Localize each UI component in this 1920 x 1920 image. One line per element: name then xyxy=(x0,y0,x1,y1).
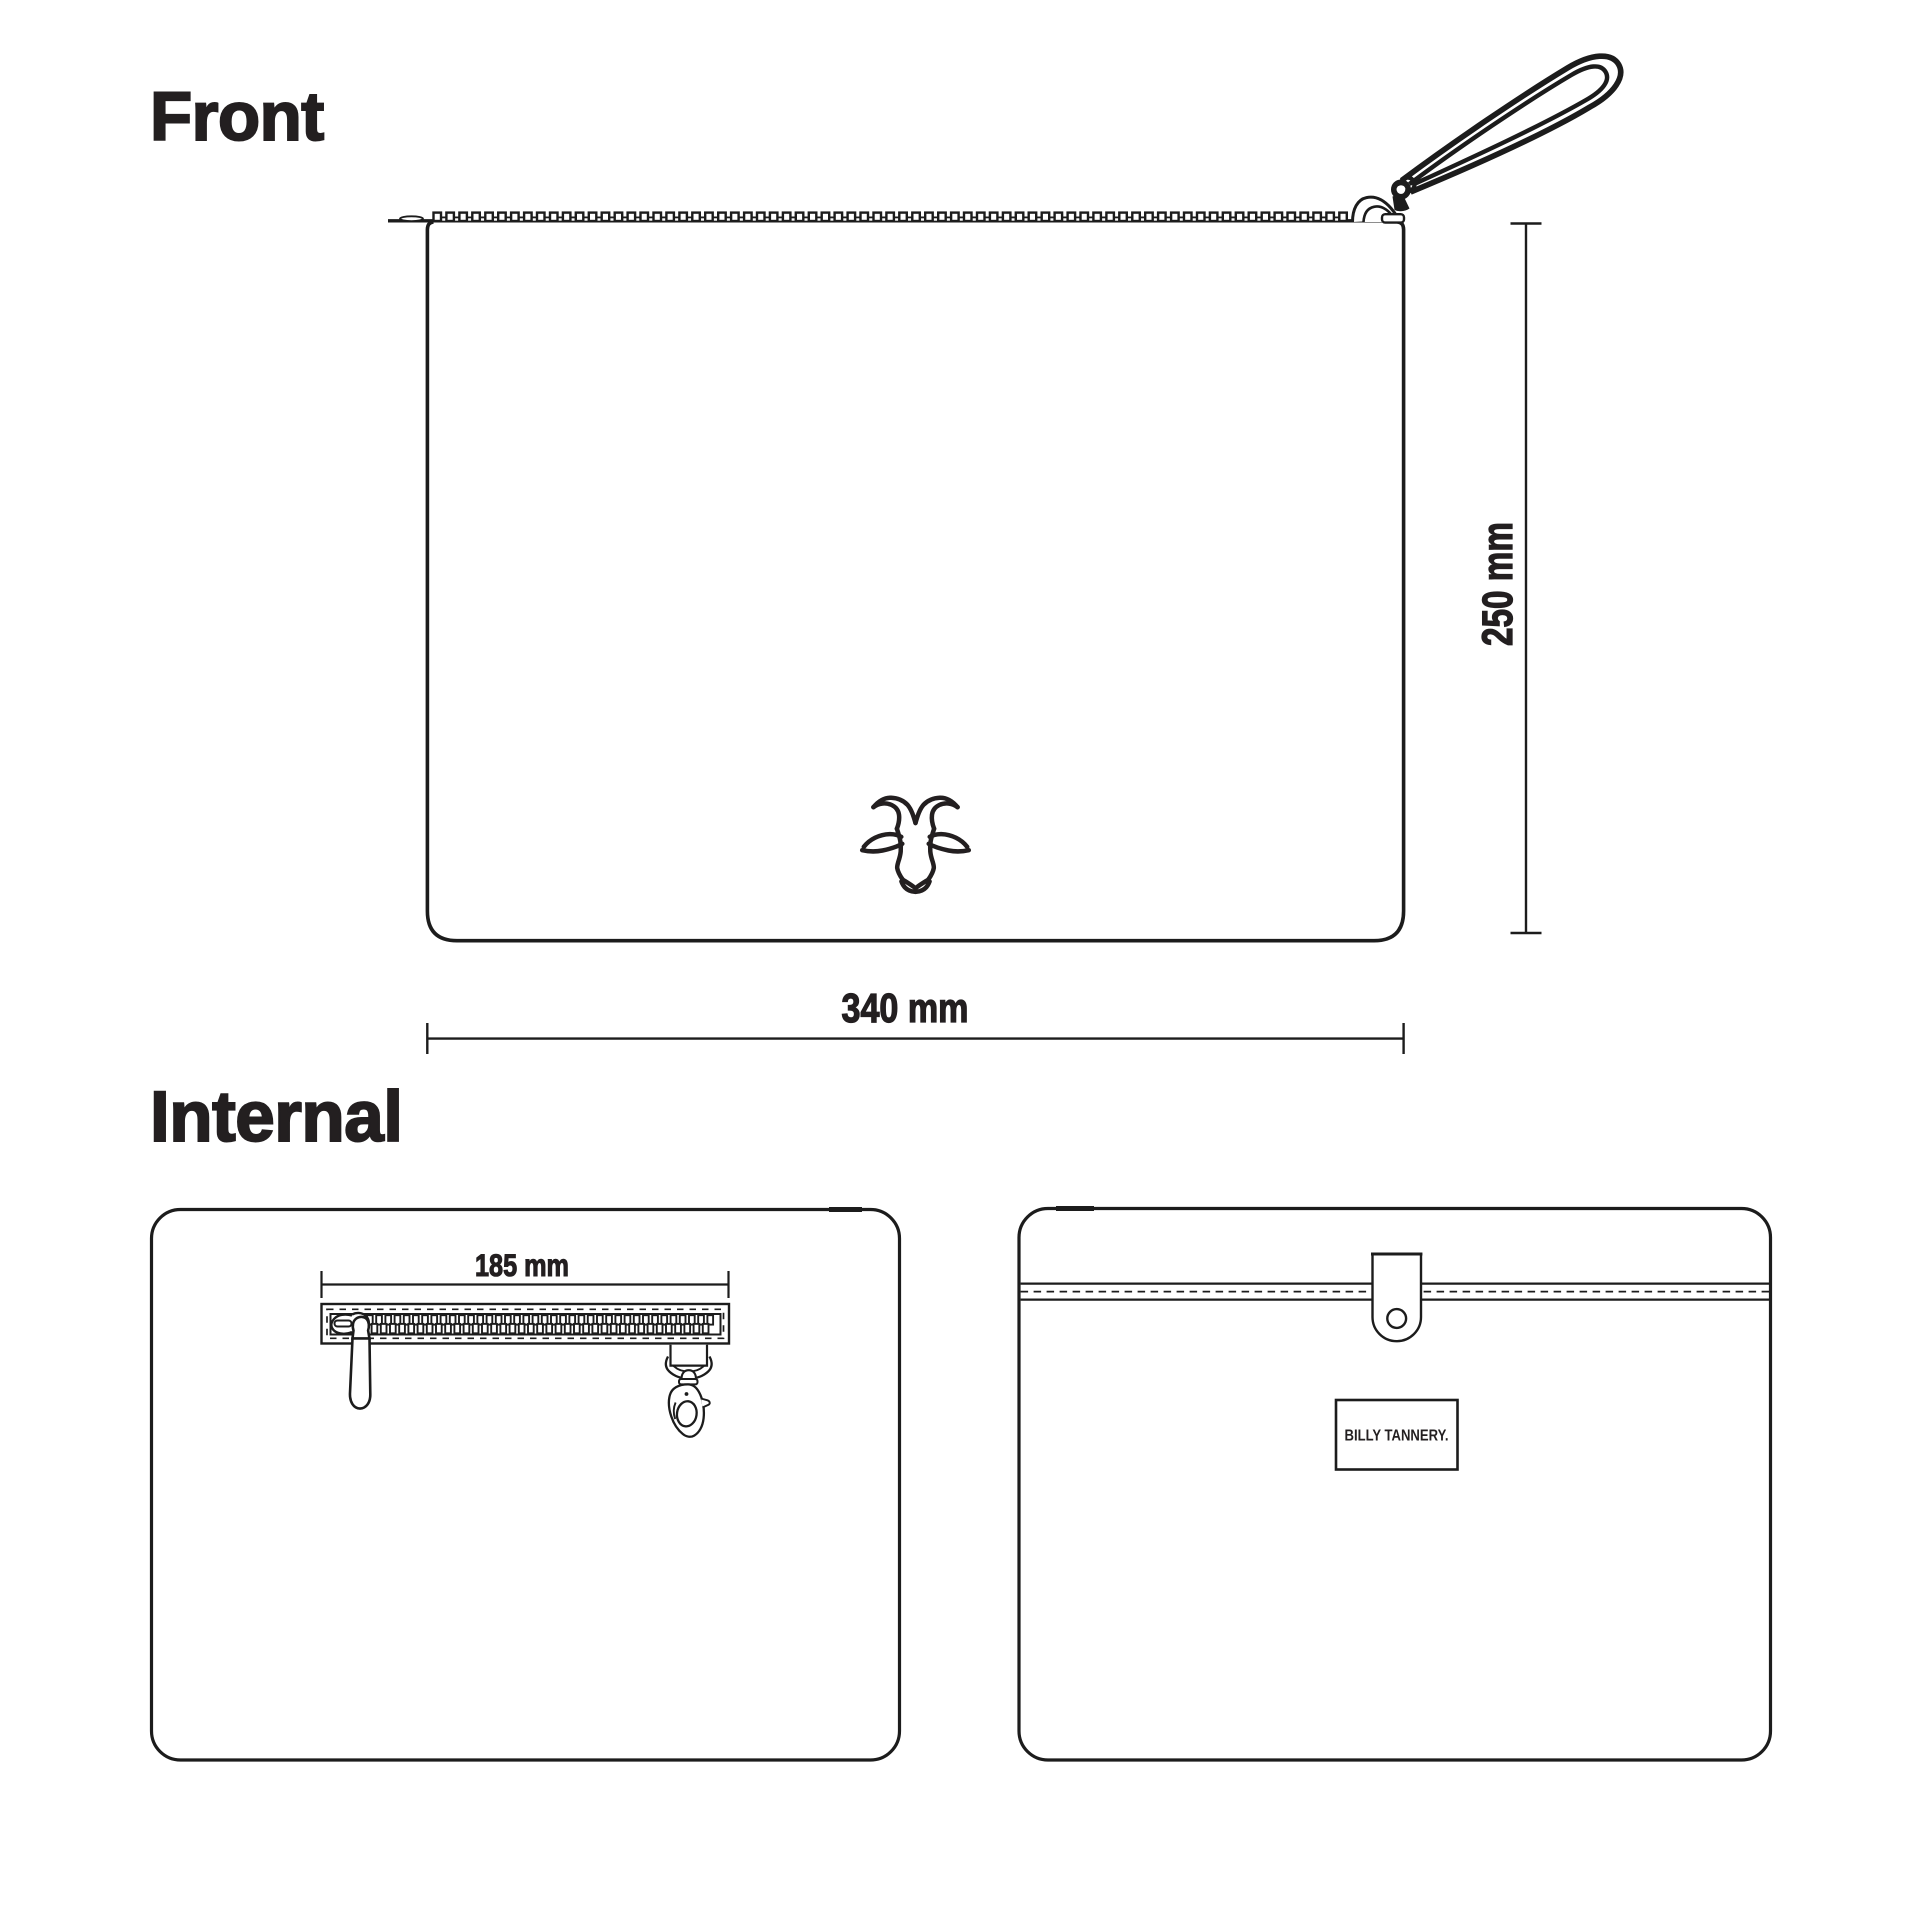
svg-text:Internal: Internal xyxy=(150,1078,402,1157)
svg-text:BILLY TANNERY.: BILLY TANNERY. xyxy=(1345,1428,1449,1445)
svg-text:185 mm: 185 mm xyxy=(475,1247,569,1283)
svg-text:Front: Front xyxy=(150,78,324,155)
svg-text:340 mm: 340 mm xyxy=(842,985,969,1031)
svg-text:250 mm: 250 mm xyxy=(1474,522,1522,646)
